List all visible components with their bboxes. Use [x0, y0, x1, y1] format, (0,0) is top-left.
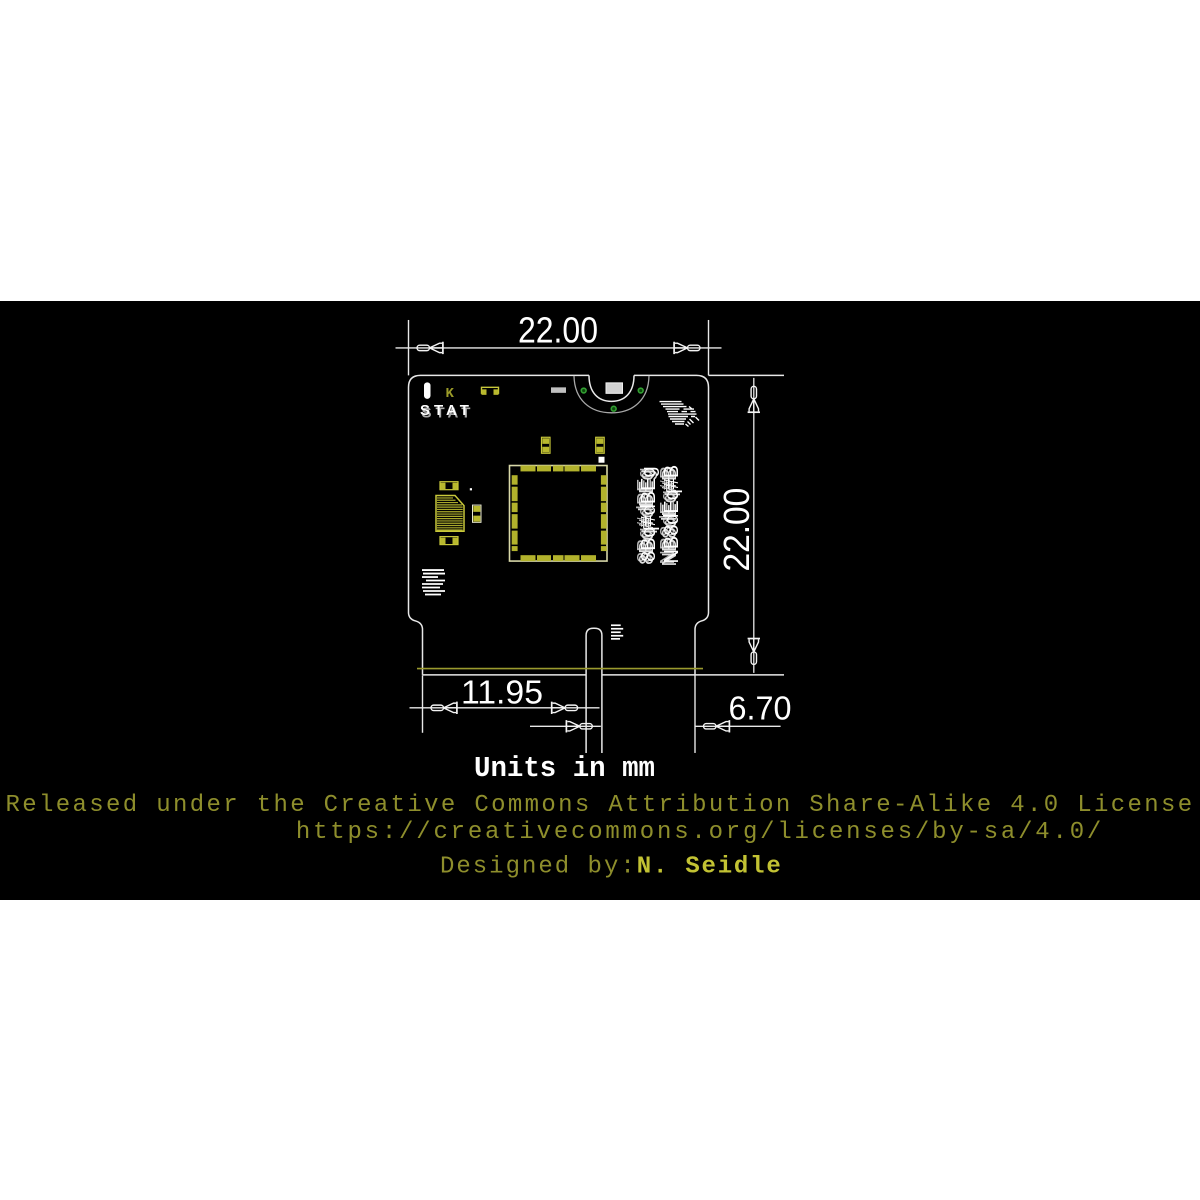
- svg-text:Units in mm: Units in mm: [474, 752, 655, 785]
- svg-text:NB8dEq#B: NB8dEq#B: [661, 465, 683, 564]
- svg-text:Released under the Creative Co: Released under the Creative Commons Attr…: [6, 792, 1195, 819]
- svg-text:22.00: 22.00: [518, 309, 598, 350]
- svg-text:11.95: 11.95: [461, 673, 543, 710]
- svg-text:https://creativecommons.org/li: https://creativecommons.org/licenses/by-…: [296, 819, 1104, 846]
- svg-text:K: K: [445, 386, 454, 402]
- svg-text:Designed by:N. Seidle: Designed by:N. Seidle: [440, 854, 783, 881]
- svg-text:22.00: 22.00: [716, 488, 757, 572]
- svg-text:6.70: 6.70: [729, 689, 792, 726]
- svg-text:STAT: STAT: [420, 402, 473, 419]
